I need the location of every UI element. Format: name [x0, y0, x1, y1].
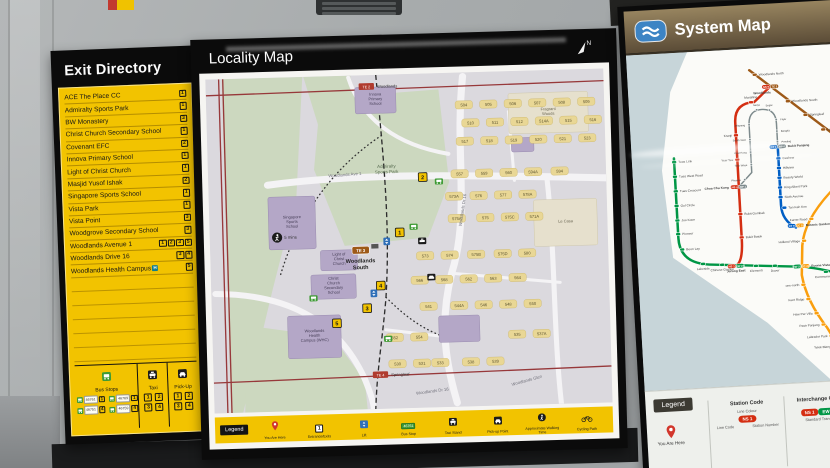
exit-entry-exits: 5 [185, 263, 193, 271]
svg-text:Campus (WHC): Campus (WHC) [301, 337, 330, 343]
svg-text:531: 531 [419, 361, 427, 366]
wall-lower-left [0, 396, 60, 468]
svg-text:NS 9: NS 9 [763, 85, 770, 89]
svg-text:594A: 594A [528, 169, 538, 174]
locality-map-legend: Legend You Are Here1Entrance/ExitsLift46… [215, 406, 614, 443]
legend-item-taxi: Taxi Stand [431, 412, 474, 436]
svg-text:5 mins: 5 mins [284, 235, 297, 240]
bus-stop-item: 467514 [77, 405, 106, 415]
svg-text:Springleaf: Springleaf [391, 372, 410, 378]
svg-text:575C: 575C [505, 214, 515, 219]
svg-text:519: 519 [510, 137, 518, 142]
legend-item-walk: Approximate Walking Time [520, 407, 563, 435]
svg-text:CC 22: CC 22 [802, 264, 810, 268]
svg-text:1: 1 [398, 230, 401, 236]
wall-glare [10, 0, 40, 400]
legend-item-pickup: Pick-up Point [476, 411, 519, 435]
exit-entry-exits: 1235 [159, 238, 192, 247]
exit-entry-label: ACE The Place CC [64, 92, 121, 101]
svg-text:NS 4: NS 4 [732, 185, 739, 189]
svg-text:Woodlands: Woodlands [377, 83, 397, 89]
svg-text:TE 4: TE 4 [377, 373, 385, 377]
legend-item-bus: 46761Bus Stop [387, 413, 430, 437]
exit-number-box: 1 [179, 102, 187, 110]
svg-text:509: 509 [583, 99, 591, 104]
exit-number-box: 1 [174, 392, 182, 400]
taxi-icon [148, 366, 158, 384]
exit-number-box: 1 [183, 201, 191, 209]
svg-text:EW 24: EW 24 [736, 264, 745, 268]
svg-text:516: 516 [589, 117, 597, 122]
svg-text:Sports Park: Sports Park [375, 169, 399, 175]
svg-text:594: 594 [556, 169, 564, 174]
exit-number-box: 1 [181, 152, 189, 160]
svg-text:Commonwealth: Commonwealth [815, 274, 830, 279]
locality-map-canvas: InnovaPrimarySchoolSingaporeSportsSchool… [205, 69, 612, 414]
svg-text:533: 533 [437, 360, 445, 365]
svg-text:Bangkit: Bangkit [781, 129, 790, 132]
exit-number-box: 1 [181, 164, 189, 172]
cycle-icon [580, 408, 592, 426]
exit-entry-label: Singapore Sports School [68, 191, 141, 201]
svg-text:TE 2: TE 2 [362, 85, 370, 89]
locality-map-board: Locality Map N InnovaPrimarySchoolSingap… [190, 28, 628, 460]
legend-station-code: Station Code Line Colour NS 1 Line CodeS… [715, 399, 778, 430]
taxi-label: Taxi [149, 385, 158, 391]
exit-number-box: 2 [185, 392, 193, 400]
exit-number-box: 1 [179, 90, 187, 98]
exit-number-box: 5 [184, 238, 192, 246]
exit-number-box: 1 [159, 239, 167, 247]
svg-text:Tuas Link: Tuas Link [678, 159, 693, 164]
svg-text:568: 568 [441, 277, 449, 282]
svg-text:Le Casa: Le Casa [558, 218, 574, 223]
svg-text:544A: 544A [454, 303, 464, 308]
pickup-section: Pick-Up 1234 [167, 361, 199, 426]
svg-text:Church: Church [333, 261, 346, 266]
svg-text:521: 521 [559, 136, 567, 141]
svg-text:575D: 575D [498, 251, 508, 256]
exit-entry-exits: 1 [181, 152, 189, 160]
svg-text:Marsiling: Marsiling [744, 95, 757, 100]
taxi-section: Taxi 1234 [137, 363, 169, 428]
system-map-title: System Map [674, 15, 771, 39]
svg-text:TE 3: TE 3 [356, 248, 366, 253]
svg-text:Yew Tee: Yew Tee [721, 158, 734, 163]
exit-number-box: 4 [155, 403, 163, 411]
bus-stop-item: 467691 [109, 394, 138, 404]
svg-text:School: School [369, 101, 381, 106]
locality-map-title: Locality Map [209, 48, 294, 67]
svg-text:548: 548 [505, 302, 513, 307]
svg-text:N: N [586, 40, 591, 47]
car-icon [178, 365, 188, 383]
svg-text:School: School [286, 224, 298, 229]
svg-text:Fajar: Fajar [780, 118, 786, 121]
svg-text:580: 580 [524, 250, 532, 255]
svg-text:South: South [353, 265, 369, 271]
svg-text:Senja: Senja [753, 104, 760, 107]
svg-text:Springleaf: Springleaf [809, 112, 824, 117]
exit-number-box: 1 [144, 393, 152, 401]
system-legend-chip: Legend [653, 397, 693, 412]
exit-directory-list: ACE The Place CC1Admiralty Sports Park1B… [64, 88, 196, 362]
svg-text:5: 5 [335, 321, 338, 327]
exit-entry-exits: 1 [179, 102, 187, 110]
exit-number-box: 3 [176, 251, 184, 259]
exit-number-box: 3 [144, 403, 152, 411]
svg-text:575: 575 [482, 215, 490, 220]
station-wall-photo: Exit Directory ACE The Place CC1Admiralt… [0, 0, 830, 468]
locality-map-mat: InnovaPrimarySchoolSingaporeSportsSchool… [199, 62, 619, 449]
svg-text:557: 557 [456, 171, 464, 176]
svg-text:578A: 578A [523, 192, 533, 197]
svg-text:530: 530 [394, 361, 402, 366]
svg-text:541: 541 [425, 304, 433, 309]
exit-number-box: 3 [176, 239, 184, 247]
exit-icon: 1 [315, 416, 323, 434]
svg-text:Jelapang: Jelapang [734, 124, 745, 128]
svg-text:Boon Lay: Boon Lay [686, 247, 700, 252]
svg-text:507: 507 [534, 100, 542, 105]
exit-entry-label: Woodlands Drive 16 [70, 253, 129, 262]
svg-text:562: 562 [465, 276, 473, 281]
exit-number-box: 3 [183, 214, 191, 222]
pin-icon [270, 417, 278, 435]
svg-text:518: 518 [486, 138, 494, 143]
svg-text:560: 560 [505, 170, 513, 175]
svg-text:EW 21: EW 21 [793, 264, 802, 268]
svg-text:511: 511 [492, 120, 499, 125]
svg-text:BP 6: BP 6 [779, 144, 786, 148]
svg-text:573A: 573A [449, 194, 459, 199]
svg-text:2: 2 [421, 175, 424, 181]
exit-number-box: 1 [180, 127, 188, 135]
exit-entry-label: Masjid Yusof Ishak [68, 179, 123, 188]
exit-entry-label: BW Monastery [65, 118, 108, 127]
svg-text:Woodlands: Woodlands [346, 258, 376, 265]
lift-icon [360, 415, 368, 433]
svg-text:563: 563 [490, 276, 498, 281]
bus-stop-item: 467594 [109, 404, 138, 414]
svg-text:514A: 514A [539, 118, 549, 123]
pickup-exits: 1234 [174, 392, 194, 411]
exit-number-box: 4 [185, 251, 193, 259]
exit-number-box: 5 [185, 263, 193, 271]
walk-icon [538, 408, 546, 426]
svg-text:577: 577 [500, 192, 508, 197]
svg-text:550: 550 [529, 301, 537, 306]
exit-entry-exits: 2 [180, 139, 188, 147]
svg-text:Kranji: Kranji [724, 134, 733, 138]
bus-stops-section: Bus Stops 467611467691467514467594 [75, 364, 140, 430]
svg-text:Segar: Segar [766, 104, 773, 107]
svg-text:School: School [328, 289, 340, 294]
exit-number-box: 1 [182, 189, 190, 197]
taxi-icon [449, 412, 457, 430]
svg-text:Gul Circle: Gul Circle [680, 203, 695, 208]
pickup-label: Pick-Up [174, 384, 192, 391]
exit-entry-label: Admiralty Sports Park [65, 105, 129, 114]
bus-icon: 46761 [401, 413, 415, 431]
legend-item-exit: 1Entrance/Exits [298, 416, 341, 440]
exit-entry-label: Innova Primary School [67, 154, 134, 164]
svg-text:538: 538 [468, 359, 476, 364]
legend-item-lift: Lift [342, 414, 385, 438]
svg-text:537A: 537A [537, 331, 547, 336]
bus-stop-item: 467611 [76, 395, 105, 405]
svg-text:Joo Koon: Joo Koon [681, 218, 695, 223]
system-map-board: System Map Woodlands NorthNS 9TE 2Woodla… [617, 0, 830, 468]
exit-directory-board: Exit Directory ACE The Place CC1Admiralt… [50, 45, 211, 444]
svg-text:575B: 575B [471, 252, 481, 257]
svg-text:564: 564 [514, 275, 522, 280]
svg-text:TE 2: TE 2 [771, 84, 778, 88]
svg-text:3: 3 [366, 306, 369, 312]
svg-text:Phoenix: Phoenix [731, 179, 741, 182]
bus-icon [101, 368, 111, 386]
svg-text:574: 574 [446, 253, 454, 258]
svg-text:DT 9: DT 9 [789, 224, 796, 228]
svg-text:552: 552 [391, 335, 399, 340]
exit-entry-label: Vista Park [68, 205, 98, 213]
exit-entry-label: Woodgrove Secondary School [69, 227, 158, 237]
svg-text:539: 539 [492, 359, 500, 364]
exit-entry-exits: 1 [181, 164, 189, 172]
exit-entry-exits: 1 [183, 201, 191, 209]
svg-text:535: 535 [514, 332, 522, 337]
legend-item-pin: You Are Here [253, 417, 296, 441]
svg-text:506: 506 [509, 101, 517, 106]
exit-entry-exits: 3 [183, 214, 191, 222]
exit-number-box: 3 [180, 114, 188, 122]
svg-text:Hillview: Hillview [783, 165, 795, 169]
system-map-legend: Legend You Are Here Station Code Line Co… [645, 379, 830, 468]
exit-entry-label: Covenant EFC [66, 143, 109, 152]
svg-text:571A: 571A [529, 214, 539, 219]
legend-you-are-here: You Are Here [657, 424, 685, 446]
svg-text:505: 505 [485, 102, 493, 107]
svg-text:Telok Blangah: Telok Blangah [814, 345, 830, 350]
bus-stop-codes: 467611467691467514467594 [76, 394, 138, 415]
svg-text:576: 576 [475, 193, 483, 198]
exit-number-box: 3 [184, 226, 192, 234]
svg-text:554: 554 [416, 334, 424, 339]
legend-item-cycle: Cycling Path [565, 408, 608, 432]
exit-entry-exits: 34 [176, 251, 192, 259]
svg-text:517: 517 [461, 139, 469, 144]
exit-number-box: 4 [185, 402, 193, 410]
svg-text:566: 566 [416, 278, 424, 283]
bus-stops-label: Bus Stops [95, 386, 118, 393]
legend-interchange-code: Interchange Code NS 1EW 24 Standard Tran… [789, 395, 830, 423]
svg-text:504: 504 [460, 102, 468, 107]
svg-text:Dover: Dover [771, 269, 780, 273]
exit-entry-label: Christ Church Secondary School [66, 128, 162, 139]
svg-text:BP 1: BP 1 [740, 185, 747, 189]
exit-directory-panel: ACE The Place CC1Admiralty Sports Park1B… [58, 83, 205, 437]
pickup-icon [493, 411, 501, 429]
svg-text:512: 512 [516, 119, 524, 124]
ceiling-vent [316, 0, 402, 15]
svg-text:Pending: Pending [781, 140, 791, 143]
svg-text:546: 546 [480, 302, 488, 307]
exit-entry-label: Woodlands Health CampusH [71, 265, 158, 275]
svg-text:Lakeside: Lakeside [697, 267, 710, 272]
exit-entry-exits: 1 [180, 127, 188, 135]
svg-text:520: 520 [535, 137, 543, 142]
exit-number-box: 3 [174, 402, 182, 410]
exit-entry-exits: 3 [180, 114, 188, 122]
svg-text:CC 19: CC 19 [796, 223, 804, 227]
north-compass-icon: N [572, 37, 595, 60]
smrt-logo [634, 19, 667, 43]
system-map-canvas: Woodlands NorthNS 9TE 2WoodlandsWoodland… [626, 44, 830, 392]
legend-chip: Legend [220, 425, 249, 436]
exit-entry-exits: 2 [182, 176, 190, 184]
exit-directory-footer: Bus Stops 467611467691467514467594 Taxi … [75, 360, 199, 430]
taxi-exits: 1234 [144, 393, 164, 412]
svg-text:DT 1: DT 1 [770, 145, 777, 149]
exit-entry-exits: 3 [184, 226, 192, 234]
hospital-icon: H [152, 265, 158, 271]
svg-text:510: 510 [467, 120, 475, 125]
exit-entry-label: Woodlands Avenue 1 [70, 241, 132, 250]
svg-text:573: 573 [422, 253, 430, 258]
svg-text:Pioneer: Pioneer [682, 231, 693, 235]
exit-entry-label: Light of Christ Church [67, 166, 131, 175]
svg-text:Cashew: Cashew [782, 156, 795, 161]
exit-entry-exits: 1 [182, 189, 190, 197]
exit-directory-title: Exit Directory [57, 50, 192, 88]
svg-text:508: 508 [558, 100, 566, 105]
exit-number-box: 2 [155, 393, 163, 401]
svg-text:559: 559 [481, 171, 489, 176]
ceiling-mini-sign [108, 0, 134, 10]
exit-number-box: 2 [167, 239, 175, 247]
svg-text:Woods: Woods [542, 111, 554, 116]
svg-text:Clementi: Clementi [750, 268, 763, 273]
svg-text:523: 523 [584, 135, 592, 140]
exit-entry-exits: 1 [179, 90, 187, 98]
svg-text:one-north: one-north [785, 283, 799, 288]
exit-number-box: 2 [180, 139, 188, 147]
exit-entry-label: Vista Point [69, 217, 101, 225]
exit-number-box: 2 [182, 176, 190, 184]
svg-text:515: 515 [565, 118, 573, 123]
